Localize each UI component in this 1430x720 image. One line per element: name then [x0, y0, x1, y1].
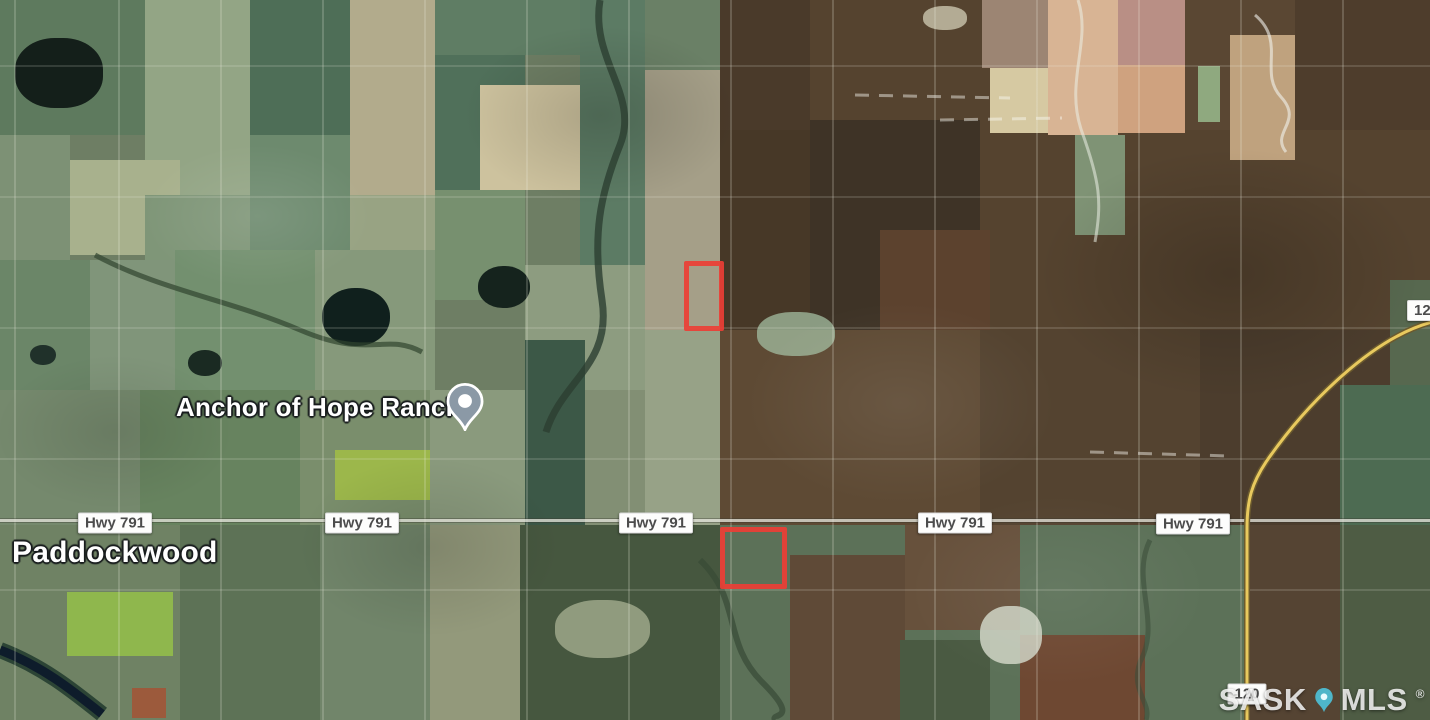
pin-body [1315, 688, 1333, 712]
terrain-patch [720, 0, 810, 130]
terrain-patch [350, 0, 435, 195]
pond [188, 350, 222, 376]
terrain-patch [900, 640, 990, 720]
terrain-patch [720, 330, 980, 525]
property-highlight-north [684, 261, 724, 331]
hwy-791-shield: Hwy 791 [1156, 514, 1230, 535]
hwy-791-shield: Hwy 791 [918, 513, 992, 534]
terrain-patch [335, 450, 430, 500]
shield-label: Hwy 791 [626, 515, 686, 532]
pin-center-dot [458, 394, 472, 408]
place-label: Anchor of Hope Ranch [176, 392, 462, 423]
terrain-patch [1390, 280, 1430, 385]
watermark-mls: MLS [1341, 682, 1408, 718]
terrain-patch [90, 260, 175, 390]
shield-label: Hwy 791 [332, 515, 392, 532]
terrain-patch [0, 135, 70, 260]
lake [322, 288, 390, 346]
terrain-patch [645, 330, 720, 525]
terrain-patch [1340, 385, 1430, 525]
place-pin-icon[interactable] [446, 383, 484, 431]
property-highlight-south [720, 527, 787, 589]
terrain-patch [67, 592, 173, 656]
hwy-791-shield: Hwy 791 [619, 513, 693, 534]
terrain-patch [757, 312, 835, 356]
lake [15, 38, 103, 108]
terrain-patch [1230, 35, 1295, 160]
shield-label: Hwy 791 [85, 515, 145, 532]
terrain-patch [480, 85, 580, 190]
terrain-patch [1048, 0, 1118, 135]
hwy-791-shield: Hwy 791 [78, 513, 152, 534]
registered-mark: ® [1416, 682, 1425, 700]
terrain-patch [580, 0, 645, 265]
hwy-791-shield: Hwy 791 [325, 513, 399, 534]
pond [30, 345, 56, 365]
shield-label: 120 [1414, 302, 1430, 319]
route-120-shield-clipped: 120 [1407, 300, 1430, 321]
terrain-patch [1198, 66, 1220, 122]
terrain-patch [320, 525, 430, 720]
pin-center-dot [1320, 693, 1327, 700]
terrain-patch [430, 525, 520, 720]
terrain-patch [0, 260, 90, 390]
terrain-patch [645, 0, 720, 70]
terrain-patch [250, 0, 350, 135]
terrain-patch [585, 390, 645, 525]
terrain-patch [555, 600, 650, 658]
terrain-patch [1075, 135, 1125, 235]
watermark-sask: SASK [1219, 682, 1307, 718]
watermark-pin-icon [1314, 687, 1334, 714]
terrain-patch [980, 330, 1200, 525]
shield-label: Hwy 791 [925, 515, 985, 532]
terrain-patch [980, 606, 1042, 664]
terrain-patch [0, 390, 140, 525]
satellite-map[interactable]: Hwy 791 Hwy 791 Hwy 791 Hwy 791 Hwy 791 … [0, 0, 1430, 720]
terrain-patch [1295, 0, 1430, 130]
shield-label: Hwy 791 [1163, 516, 1223, 533]
terrain-patch [435, 0, 580, 55]
terrain-patch [990, 68, 1048, 133]
terrain-patch [982, 0, 1048, 68]
town-label: Paddockwood [12, 536, 218, 570]
terrain-patch [132, 688, 166, 718]
sask-mls-watermark: SASK MLS® [1219, 682, 1425, 718]
terrain-patch [250, 135, 350, 260]
terrain-patch [923, 6, 967, 30]
terrain-patch [525, 340, 585, 525]
terrain-patch [1118, 65, 1185, 133]
terrain-patch [1118, 0, 1185, 65]
pond [478, 266, 530, 308]
terrain-patch [790, 555, 905, 720]
